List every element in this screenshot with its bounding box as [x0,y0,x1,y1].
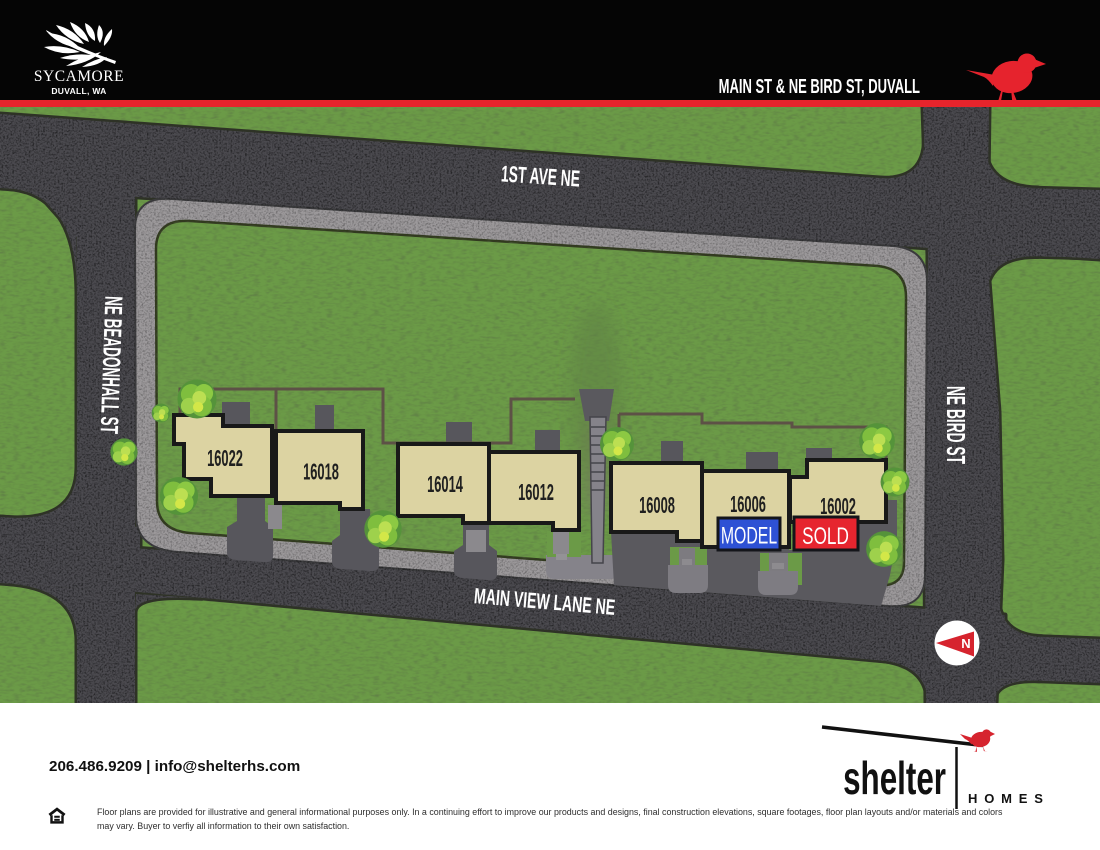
svg-text:16022: 16022 [207,445,243,471]
svg-text:DUVALL, WA: DUVALL, WA [51,86,106,96]
svg-text:SOLD: SOLD [802,523,849,550]
svg-text:16014: 16014 [427,471,463,497]
svg-text:16012: 16012 [518,479,554,505]
svg-text:NE BIRD ST: NE BIRD ST [941,386,970,464]
svg-text:16008: 16008 [639,492,675,518]
svg-text:MAIN ST & NE BIRD ST, DUVALL: MAIN ST & NE BIRD ST, DUVALL [719,74,920,98]
svg-text:16018: 16018 [303,459,339,485]
svg-text:N: N [961,636,970,651]
svg-text:HOMES: HOMES [968,791,1050,806]
svg-text:16006: 16006 [730,491,766,517]
svg-text:shelter: shelter [843,753,946,805]
svg-text:1ST AVE NE: 1ST AVE NE [500,162,580,193]
svg-text:SYCAMORE: SYCAMORE [34,68,124,85]
svg-text:MODEL: MODEL [721,523,777,549]
svg-text:NE BEADONHALL ST: NE BEADONHALL ST [94,296,126,435]
svg-text:16002: 16002 [820,493,856,519]
